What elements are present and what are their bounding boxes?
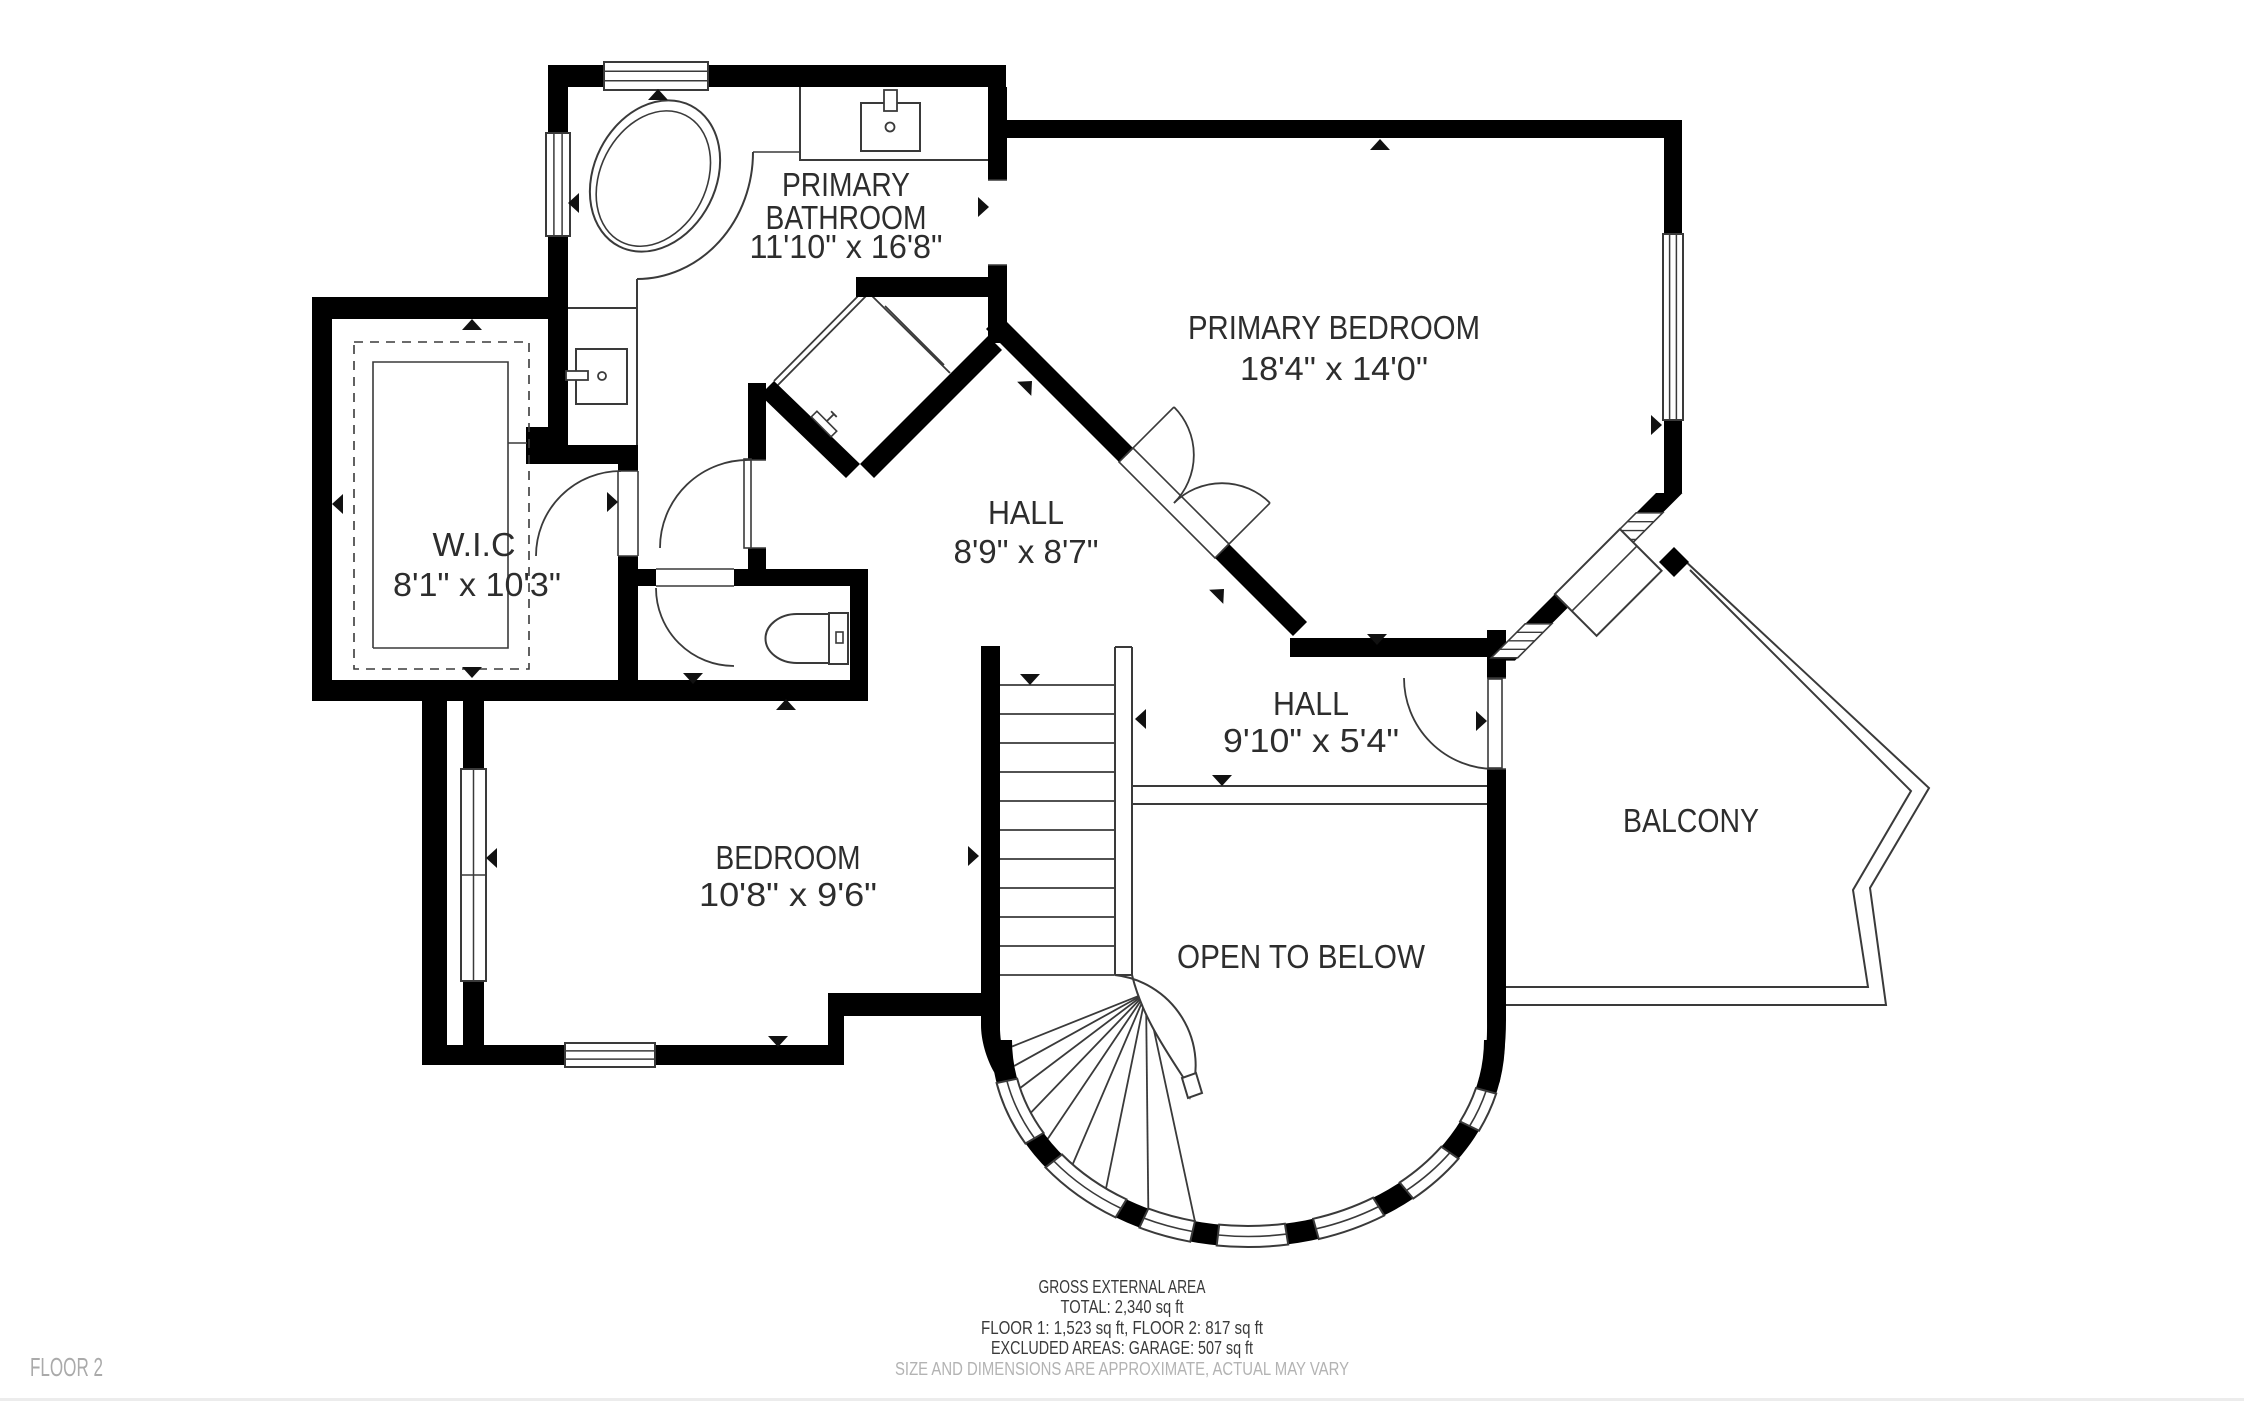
svg-text:GROSS EXTERNAL AREA: GROSS EXTERNAL AREA xyxy=(1039,1277,1206,1297)
svg-text:SIZE AND DIMENSIONS ARE APPROX: SIZE AND DIMENSIONS ARE APPROXIMATE, ACT… xyxy=(895,1359,1349,1379)
svg-text:BALCONY: BALCONY xyxy=(1623,802,1759,839)
svg-text:FLOOR 2: FLOOR 2 xyxy=(30,1352,103,1382)
svg-text:FLOOR 1: 1,523 sq ft, FLOOR 2:: FLOOR 1: 1,523 sq ft, FLOOR 2: 817 sq ft xyxy=(981,1318,1263,1338)
svg-text:8'9" x 8'7": 8'9" x 8'7" xyxy=(954,533,1099,570)
svg-text:HALL: HALL xyxy=(988,494,1064,531)
svg-text:9'10" x 5'4": 9'10" x 5'4" xyxy=(1223,722,1399,759)
svg-text:TOTAL: 2,340 sq ft: TOTAL: 2,340 sq ft xyxy=(1061,1297,1184,1317)
svg-text:W.I.C: W.I.C xyxy=(433,526,516,563)
svg-text:PRIMARY BEDROOM: PRIMARY BEDROOM xyxy=(1188,309,1480,346)
svg-text:PRIMARY: PRIMARY xyxy=(782,166,910,203)
svg-text:HALL: HALL xyxy=(1273,685,1349,722)
svg-text:8'1" x 10'3": 8'1" x 10'3" xyxy=(393,566,561,603)
svg-text:10'8" x 9'6": 10'8" x 9'6" xyxy=(699,876,877,913)
svg-text:18'4" x 14'0": 18'4" x 14'0" xyxy=(1240,350,1428,387)
svg-text:OPEN TO BELOW: OPEN TO BELOW xyxy=(1177,938,1426,975)
svg-text:11'10" x 16'8": 11'10" x 16'8" xyxy=(750,228,943,265)
svg-text:EXCLUDED AREAS: GARAGE: 507 sq: EXCLUDED AREAS: GARAGE: 507 sq ft xyxy=(991,1338,1253,1358)
svg-text:BEDROOM: BEDROOM xyxy=(716,839,861,876)
